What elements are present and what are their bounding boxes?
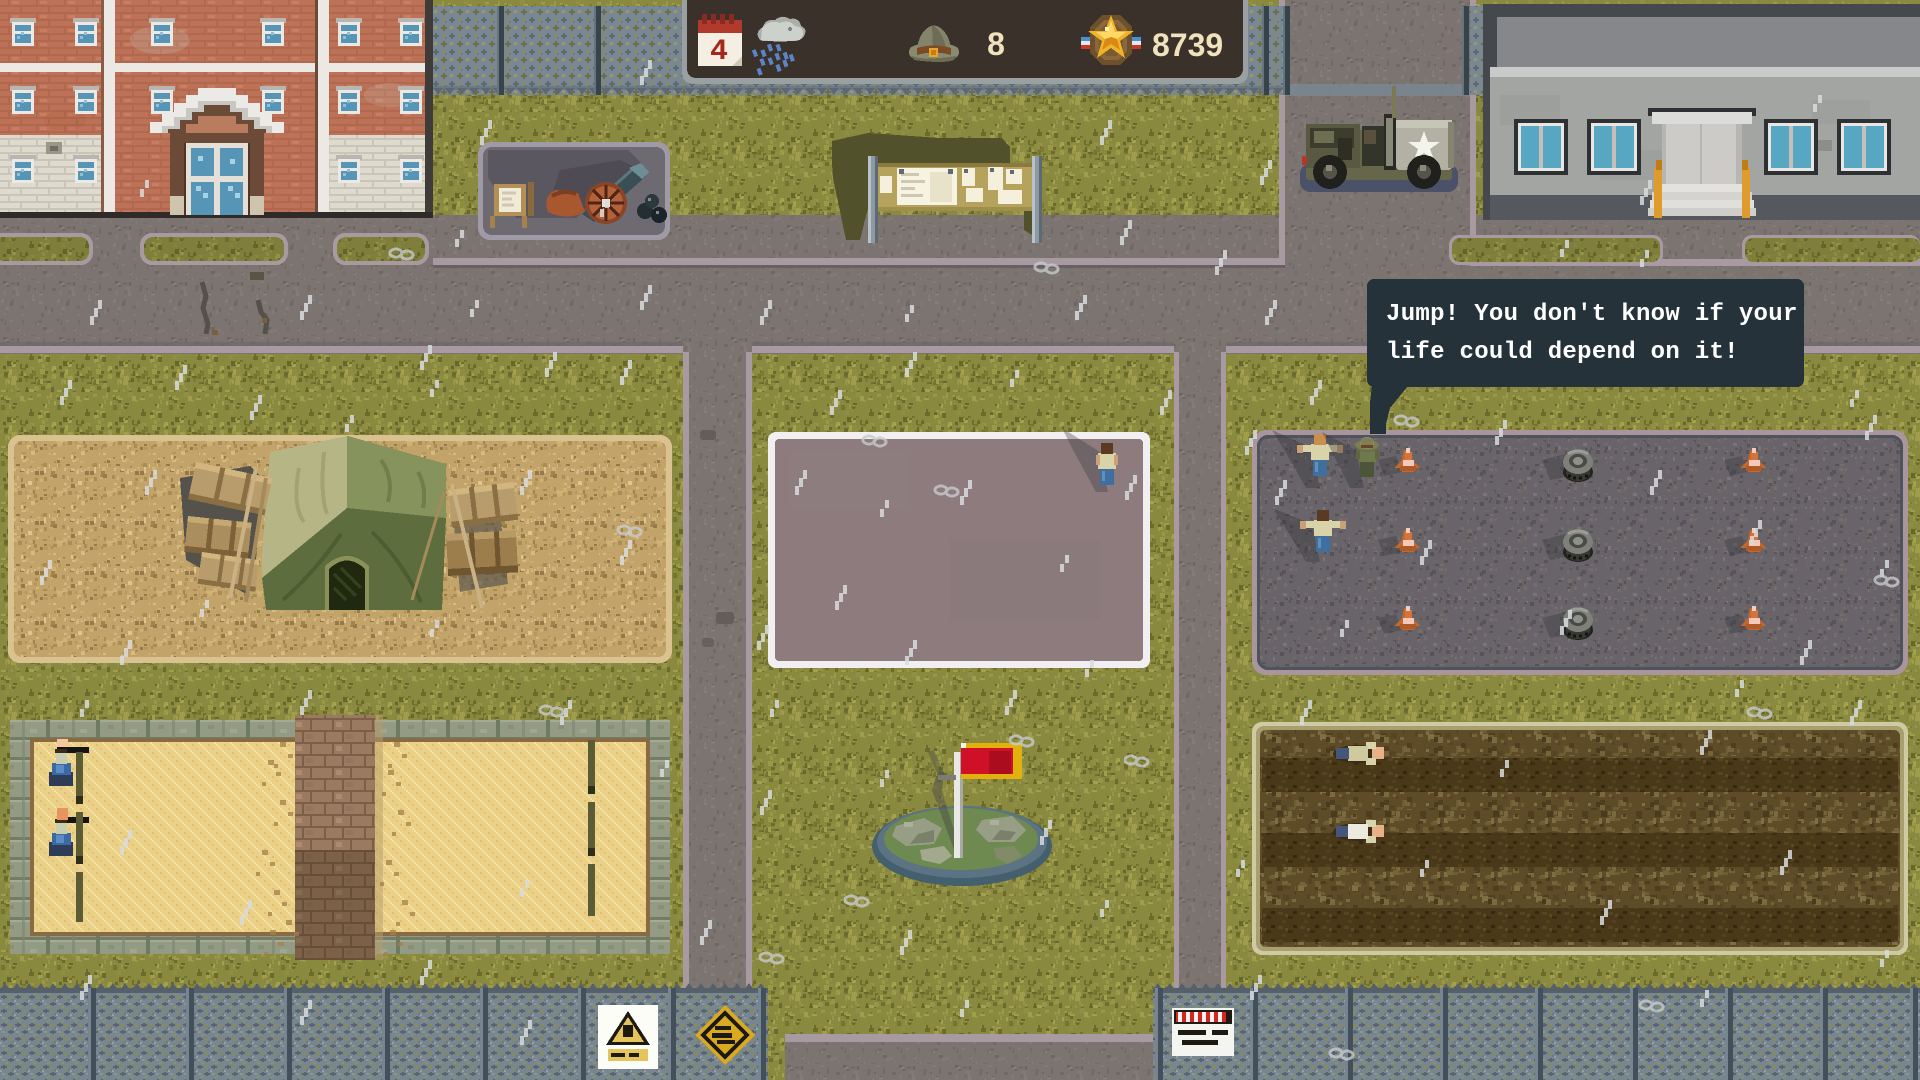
svg-text:8: 8 <box>987 26 1005 62</box>
svg-text:life could depend on it!: life could depend on it! <box>1386 339 1739 366</box>
svg-text:8739: 8739 <box>1152 27 1223 63</box>
svg-text:4: 4 <box>710 35 728 69</box>
svg-text:Jump! You don't know if your: Jump! You don't know if your <box>1386 301 1798 328</box>
